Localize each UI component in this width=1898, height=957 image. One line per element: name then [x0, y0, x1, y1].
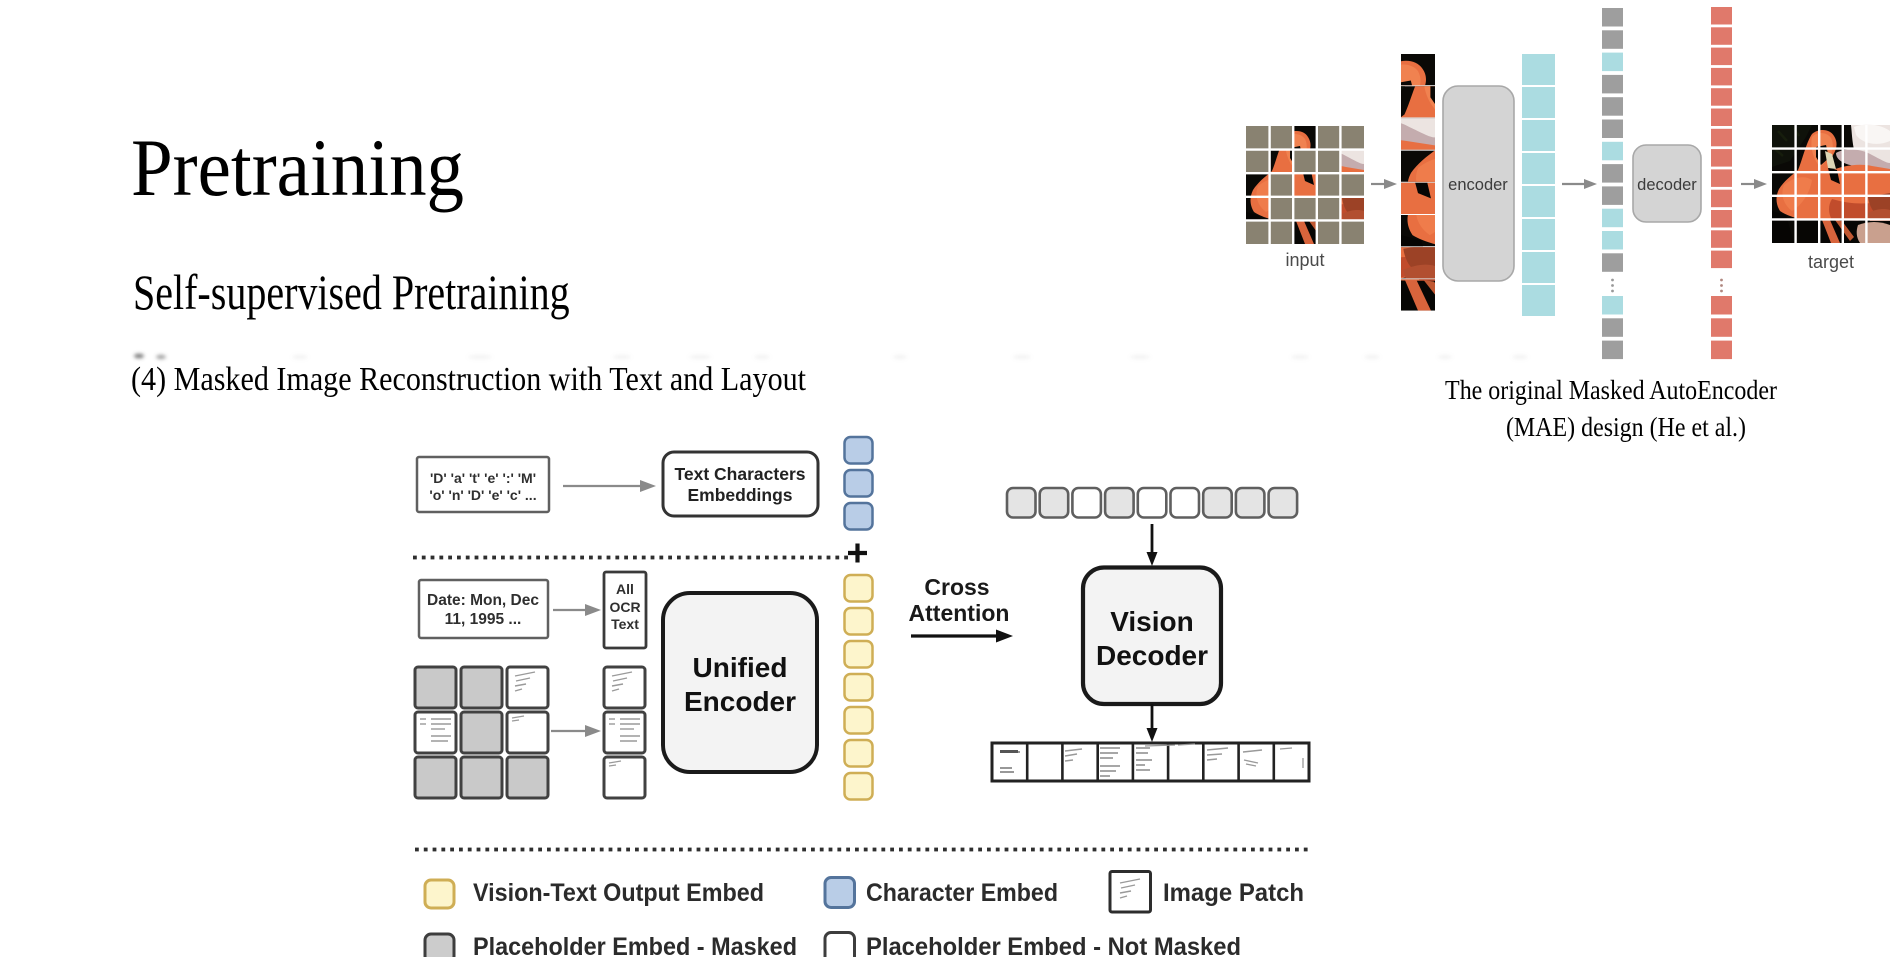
svg-text:'o' 'n' 'D' 'e' 'c' ...: 'o' 'n' 'D' 'e' 'c' ... — [429, 487, 536, 503]
svg-text:Date: Mon, Dec: Date: Mon, Dec — [427, 592, 539, 609]
svg-text:'D' 'a' 't' 'e' ':' 'M': 'D' 'a' 't' 'e' ':' 'M' — [430, 470, 536, 486]
svg-text:11, 1995 ...: 11, 1995 ... — [445, 611, 522, 628]
svg-text:Placeholder Embed - Masked: Placeholder Embed - Masked — [473, 933, 797, 957]
svg-text:decoder: decoder — [1637, 176, 1697, 194]
svg-text:Vision: Vision — [1110, 606, 1194, 637]
svg-text:Placeholder Embed - Not Masked: Placeholder Embed - Not Masked — [866, 933, 1241, 957]
svg-text:Text: Text — [611, 616, 639, 632]
svg-text:Text Characters: Text Characters — [675, 464, 806, 484]
svg-text:Character Embed: Character Embed — [866, 879, 1058, 907]
svg-text:target: target — [1808, 252, 1854, 272]
svg-text:Cross: Cross — [924, 574, 989, 600]
svg-text:Decoder: Decoder — [1096, 640, 1208, 671]
svg-text:encoder: encoder — [1448, 176, 1508, 194]
svg-text:Encoder: Encoder — [684, 686, 796, 717]
svg-text:input: input — [1285, 250, 1324, 270]
svg-text:Vision-Text Output Embed: Vision-Text Output Embed — [473, 879, 764, 907]
svg-text:OCR: OCR — [609, 599, 640, 615]
svg-text:Embeddings: Embeddings — [687, 485, 792, 505]
svg-text:Unified: Unified — [693, 652, 788, 683]
svg-text:All: All — [616, 581, 634, 597]
svg-text:Attention: Attention — [909, 600, 1010, 626]
svg-text:Image Patch: Image Patch — [1163, 879, 1304, 907]
